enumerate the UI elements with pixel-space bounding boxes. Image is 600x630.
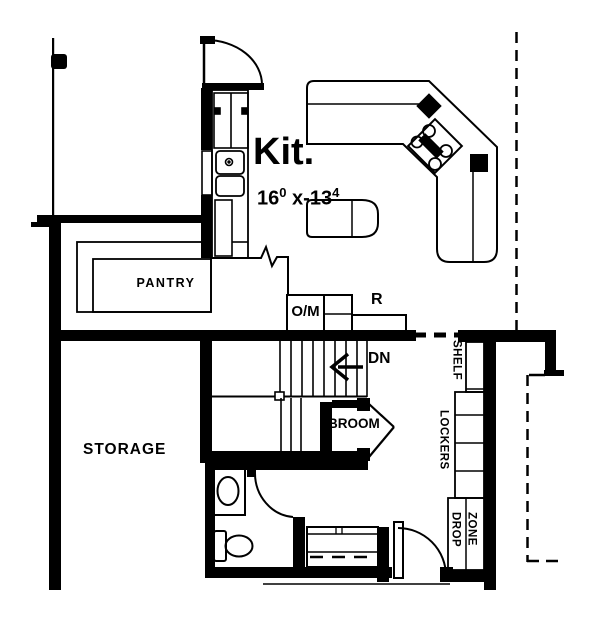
cabinet-notch-right xyxy=(242,108,247,114)
wall-stair-bottom xyxy=(212,451,370,461)
wall-storage-top xyxy=(49,330,416,341)
counter-appliance-square xyxy=(471,155,487,171)
exterior-door-swing-arc xyxy=(398,528,446,576)
base-cabinet xyxy=(215,200,232,256)
post-marker xyxy=(51,54,67,69)
shelf-cabinet xyxy=(466,342,484,392)
bench-seat xyxy=(307,527,378,567)
sink xyxy=(218,477,239,505)
pantry-label: PANTRY xyxy=(110,277,222,290)
oven-microwave-label: O/M xyxy=(287,304,324,319)
shelf-label: SHELF xyxy=(450,340,462,394)
kitchen-counter xyxy=(307,81,497,262)
staircase xyxy=(212,341,367,451)
down-label: DN xyxy=(368,351,390,367)
wall-upper-left xyxy=(37,215,211,223)
bathroom xyxy=(213,468,293,561)
exterior-door-leaf xyxy=(394,522,403,578)
oven-knob-dot xyxy=(228,161,230,163)
wall-entry-return xyxy=(545,342,556,372)
wall-cabinet-upper xyxy=(201,88,212,150)
counter-outline xyxy=(307,81,497,262)
sink-cabinet xyxy=(216,176,244,196)
newel-post xyxy=(275,392,284,400)
storage-label: STORAGE xyxy=(83,442,166,458)
kitchen-door xyxy=(204,38,262,85)
floor-plan: Kit. 160 x-134 PANTRY O/M R DN BROOM STO… xyxy=(0,0,600,630)
kitchen-label: Kit. xyxy=(253,133,314,171)
bath-door-swing-arc xyxy=(255,473,293,517)
wall-tick-left xyxy=(31,222,50,227)
cabinet-notch-left xyxy=(215,108,220,114)
counter-break-line xyxy=(211,247,288,295)
wall-entry-top xyxy=(458,330,556,342)
broom-jamb-bottom xyxy=(357,448,370,461)
broom-jamb-top xyxy=(357,398,370,411)
down-arrow xyxy=(332,354,363,380)
kitchen-dimensions: 160 x-134 xyxy=(257,186,339,209)
drop-label: DROP xyxy=(449,512,461,567)
wall-bath-right xyxy=(293,517,305,569)
toilet-tank xyxy=(214,531,226,561)
wall-stair-left xyxy=(200,341,212,463)
kitchen-door-swing-arc xyxy=(206,40,262,85)
dim-height-sup: 4 xyxy=(332,185,339,200)
wall-right xyxy=(484,341,496,590)
lockers-label: LOCKERS xyxy=(437,410,449,490)
toilet-bowl xyxy=(226,536,253,557)
dim-width: 16 xyxy=(257,188,279,210)
dim-width-sup: 0 xyxy=(279,185,286,200)
wall-entry-tick xyxy=(544,370,564,376)
refrigerator-box xyxy=(352,315,406,331)
wall-left xyxy=(49,223,61,590)
broom-label: BROOM xyxy=(328,417,380,431)
lockers-cabinet xyxy=(455,392,484,498)
refrigerator-label: R xyxy=(371,292,383,308)
dishwasher xyxy=(202,151,212,195)
zone-label: ZONE xyxy=(465,512,477,567)
wall-bottom-right xyxy=(440,570,496,582)
dim-sep: x-13 xyxy=(292,188,332,210)
wall-broom-top xyxy=(332,400,360,408)
